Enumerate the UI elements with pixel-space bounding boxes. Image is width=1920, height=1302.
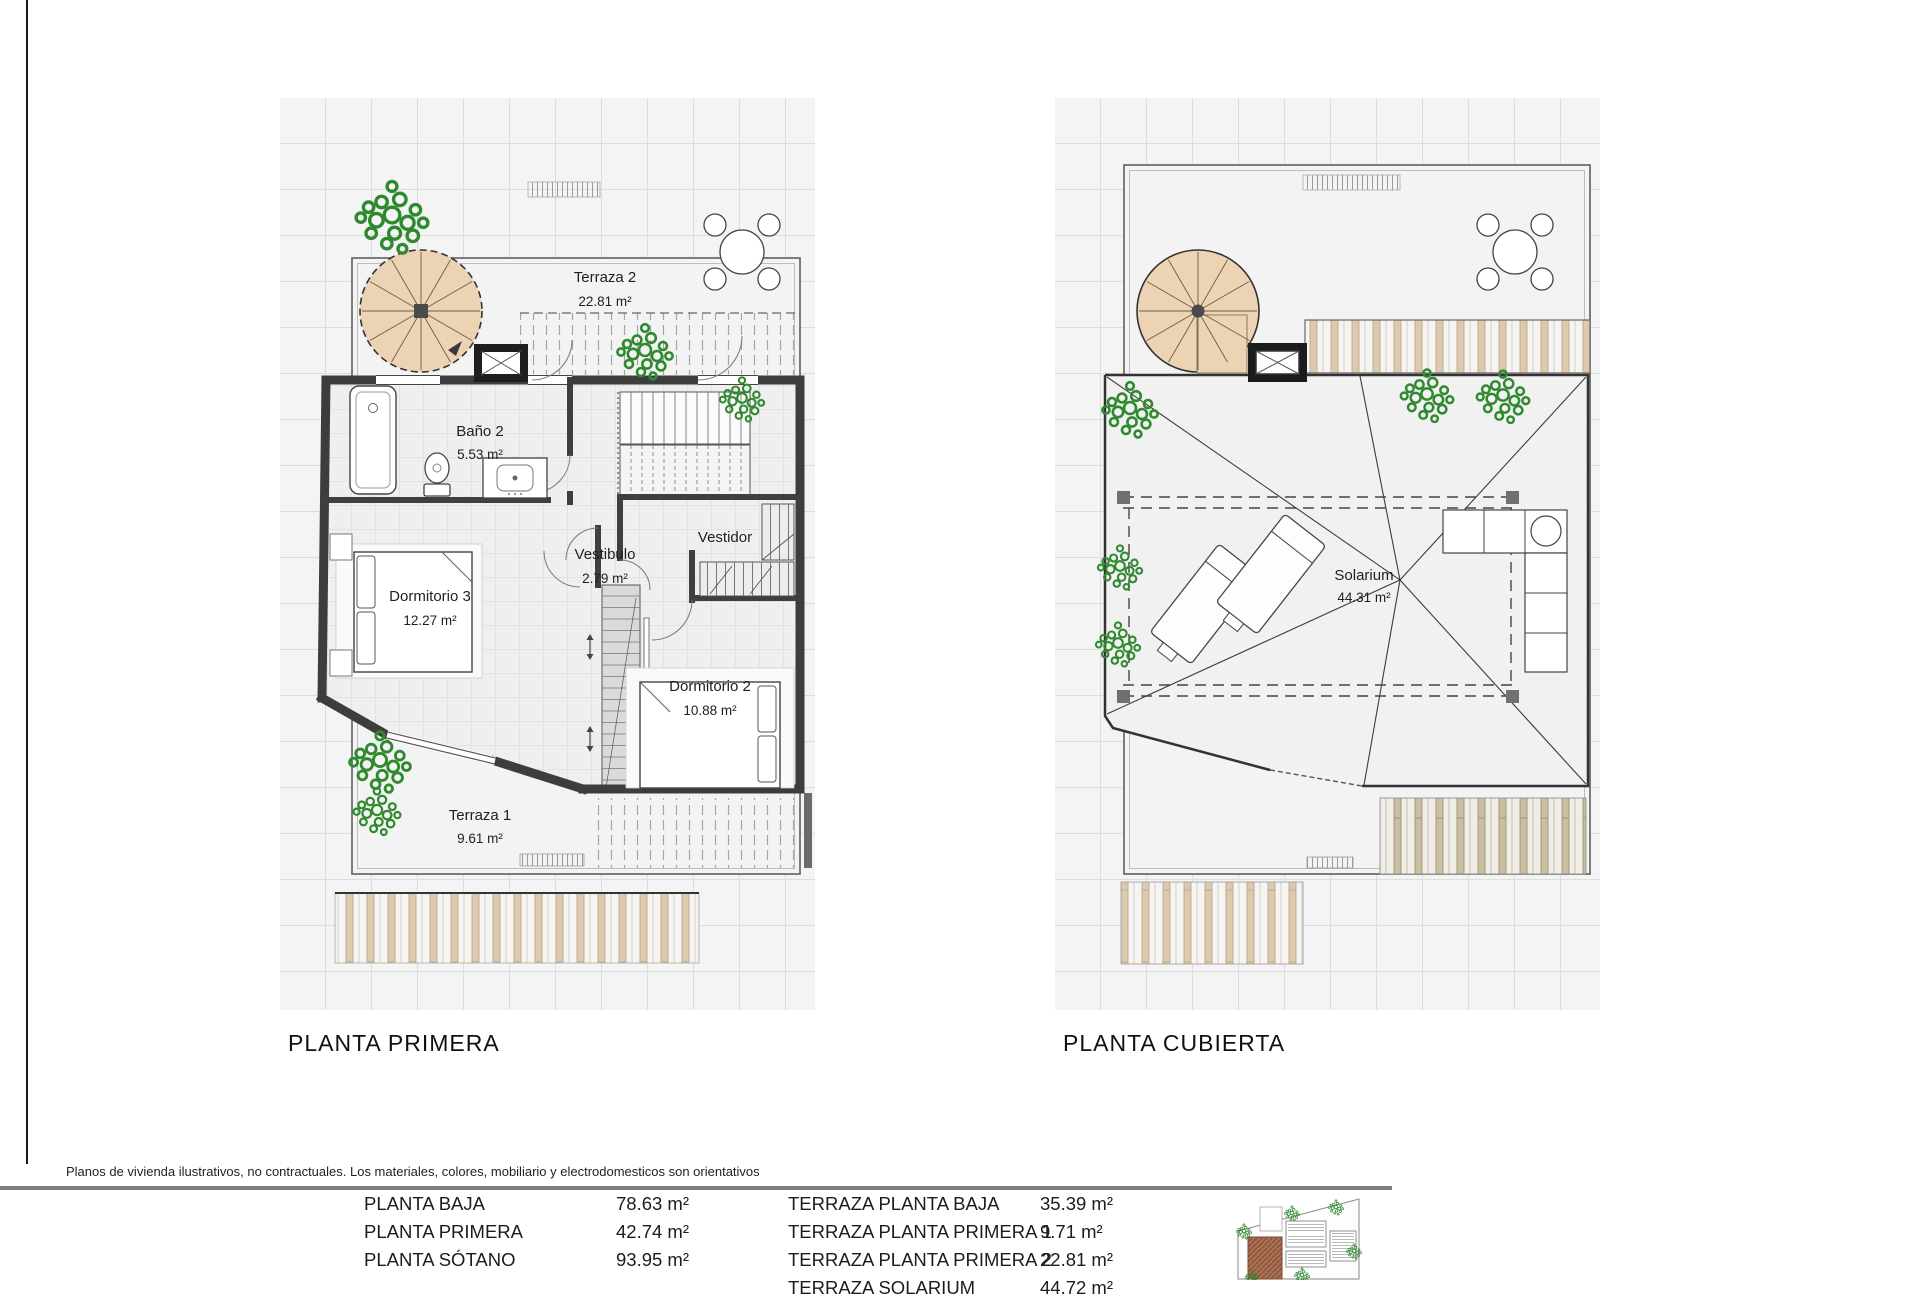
- table-row: PLANTA BAJA 78.63 m²: [364, 1190, 736, 1218]
- room-area-dormitorio3: 12.27 m²: [403, 613, 457, 628]
- area-value: 78.63 m²: [616, 1190, 736, 1218]
- disclaimer-text: Planos de vivienda ilustrativos, no cont…: [66, 1164, 760, 1179]
- area-value: 44.72 m²: [1040, 1274, 1160, 1302]
- areas-table-right: TERRAZA PLANTA BAJA 35.39 m² TERRAZA PLA…: [788, 1190, 1160, 1302]
- room-label-dormitorio2: Dormitorio 2: [669, 678, 751, 695]
- areas-table-left: PLANTA BAJA 78.63 m² PLANTA PRIMERA 42.7…: [364, 1190, 736, 1274]
- room-area-bano2: 5.53 m²: [457, 447, 503, 462]
- room-label-bano2: Baño 2: [456, 423, 504, 440]
- bed-icon: [330, 534, 482, 678]
- area-label: PLANTA SÓTANO: [364, 1246, 616, 1274]
- room-area-solarium: 44.31 m²: [1337, 590, 1391, 605]
- table-row: PLANTA SÓTANO 93.95 m²: [364, 1246, 736, 1274]
- area-label: PLANTA PRIMERA: [364, 1218, 616, 1246]
- vent-grille-icon: [1307, 857, 1353, 868]
- toilet-icon: [424, 453, 450, 496]
- area-label: TERRAZA PLANTA PRIMERA 1: [788, 1218, 1040, 1246]
- area-label: TERRAZA SOLARIUM: [788, 1274, 1040, 1302]
- room-area-dormitorio2: 10.88 m²: [683, 703, 737, 718]
- area-value: 42.74 m²: [616, 1218, 736, 1246]
- skylight-shaft-icon: [474, 344, 528, 382]
- area-value: 22.81 m²: [1040, 1246, 1160, 1274]
- area-value: 35.39 m²: [1040, 1190, 1160, 1218]
- pergola-slats: [1380, 798, 1586, 874]
- pergola-slats: [1305, 320, 1590, 373]
- table-row: PLANTA PRIMERA 42.74 m²: [364, 1218, 736, 1246]
- spiral-staircase-icon: [360, 250, 482, 372]
- spiral-staircase-icon: [1137, 250, 1259, 373]
- room-area-terraza2: 22.81 m²: [578, 294, 632, 309]
- room-area-vestibulo: 2.79 m²: [582, 571, 628, 586]
- table-row: TERRAZA SOLARIUM 44.72 m²: [788, 1274, 1160, 1302]
- plan-title-planta-cubierta: PLANTA CUBIERTA: [1063, 1030, 1285, 1057]
- plan-sheet: { "page": { "disclaimer": "Planos de viv…: [0, 0, 1920, 1280]
- area-value: 9.71 m²: [1040, 1218, 1160, 1246]
- table-row: TERRAZA PLANTA PRIMERA 2 22.81 m²: [788, 1246, 1160, 1274]
- sink-vanity-icon: [483, 458, 547, 498]
- terraza1-deck-hatch: [590, 798, 800, 868]
- skylight-shaft-icon: [1248, 343, 1307, 382]
- table-row: TERRAZA PLANTA BAJA 35.39 m²: [788, 1190, 1160, 1218]
- room-label-vestibulo: Vestibulo: [575, 546, 636, 563]
- room-label-terraza2: Terraza 2: [574, 269, 637, 286]
- floorplan-planta-primera: Terraza 2 22.81 m² Baño 2 5.53 m² Vestib…: [280, 98, 815, 1010]
- side-table-icon: [1531, 516, 1561, 546]
- room-label-solarium: Solarium: [1334, 567, 1393, 584]
- floorplan-planta-cubierta: Solarium 44.31 m²: [1055, 98, 1600, 1010]
- room-area-terraza1: 9.61 m²: [457, 831, 503, 846]
- vent-grille-icon: [528, 182, 600, 197]
- area-label: TERRAZA PLANTA PRIMERA 2: [788, 1246, 1040, 1274]
- vent-grille-icon: [1303, 175, 1400, 190]
- site-plan-thumbnail: [1232, 1193, 1364, 1280]
- area-label: TERRAZA PLANTA BAJA: [788, 1190, 1040, 1218]
- vent-grille-icon: [520, 854, 584, 866]
- deck-slats-band: [335, 893, 699, 963]
- area-value: 93.95 m²: [616, 1246, 736, 1274]
- table-row: TERRAZA PLANTA PRIMERA 1 9.71 m²: [788, 1218, 1160, 1246]
- room-label-terraza1: Terraza 1: [449, 807, 512, 824]
- sheet-left-border-line: [26, 0, 28, 1164]
- deck-slats-band: [1121, 882, 1303, 964]
- room-label-dormitorio3: Dormitorio 3: [389, 588, 471, 605]
- room-label-vestidor: Vestidor: [698, 529, 752, 546]
- bathtub-icon: [350, 386, 396, 494]
- staircase-up-icon: [618, 392, 750, 497]
- plan-title-planta-primera: PLANTA PRIMERA: [288, 1030, 500, 1057]
- area-label: PLANTA BAJA: [364, 1190, 616, 1218]
